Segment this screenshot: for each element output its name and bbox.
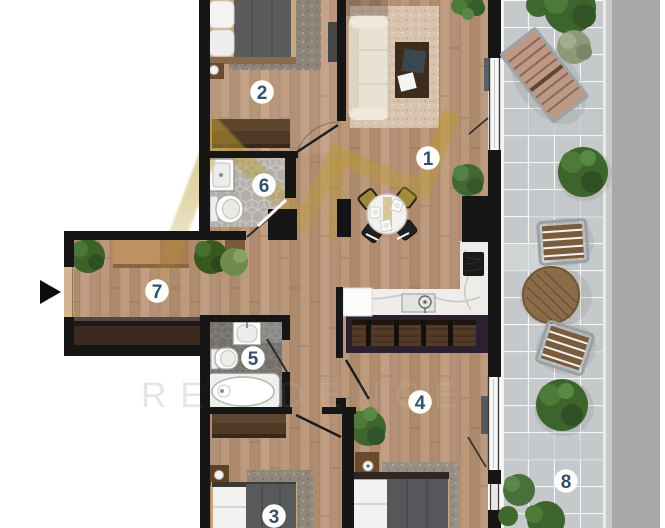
svg-text:7: 7 bbox=[152, 282, 163, 303]
svg-text:4: 4 bbox=[415, 393, 426, 414]
svg-text:8: 8 bbox=[561, 472, 572, 493]
svg-text:3: 3 bbox=[269, 507, 280, 528]
svg-text:6: 6 bbox=[259, 176, 270, 197]
svg-text:5: 5 bbox=[248, 349, 259, 370]
svg-text:1: 1 bbox=[423, 149, 434, 170]
svg-text:2: 2 bbox=[257, 83, 268, 104]
